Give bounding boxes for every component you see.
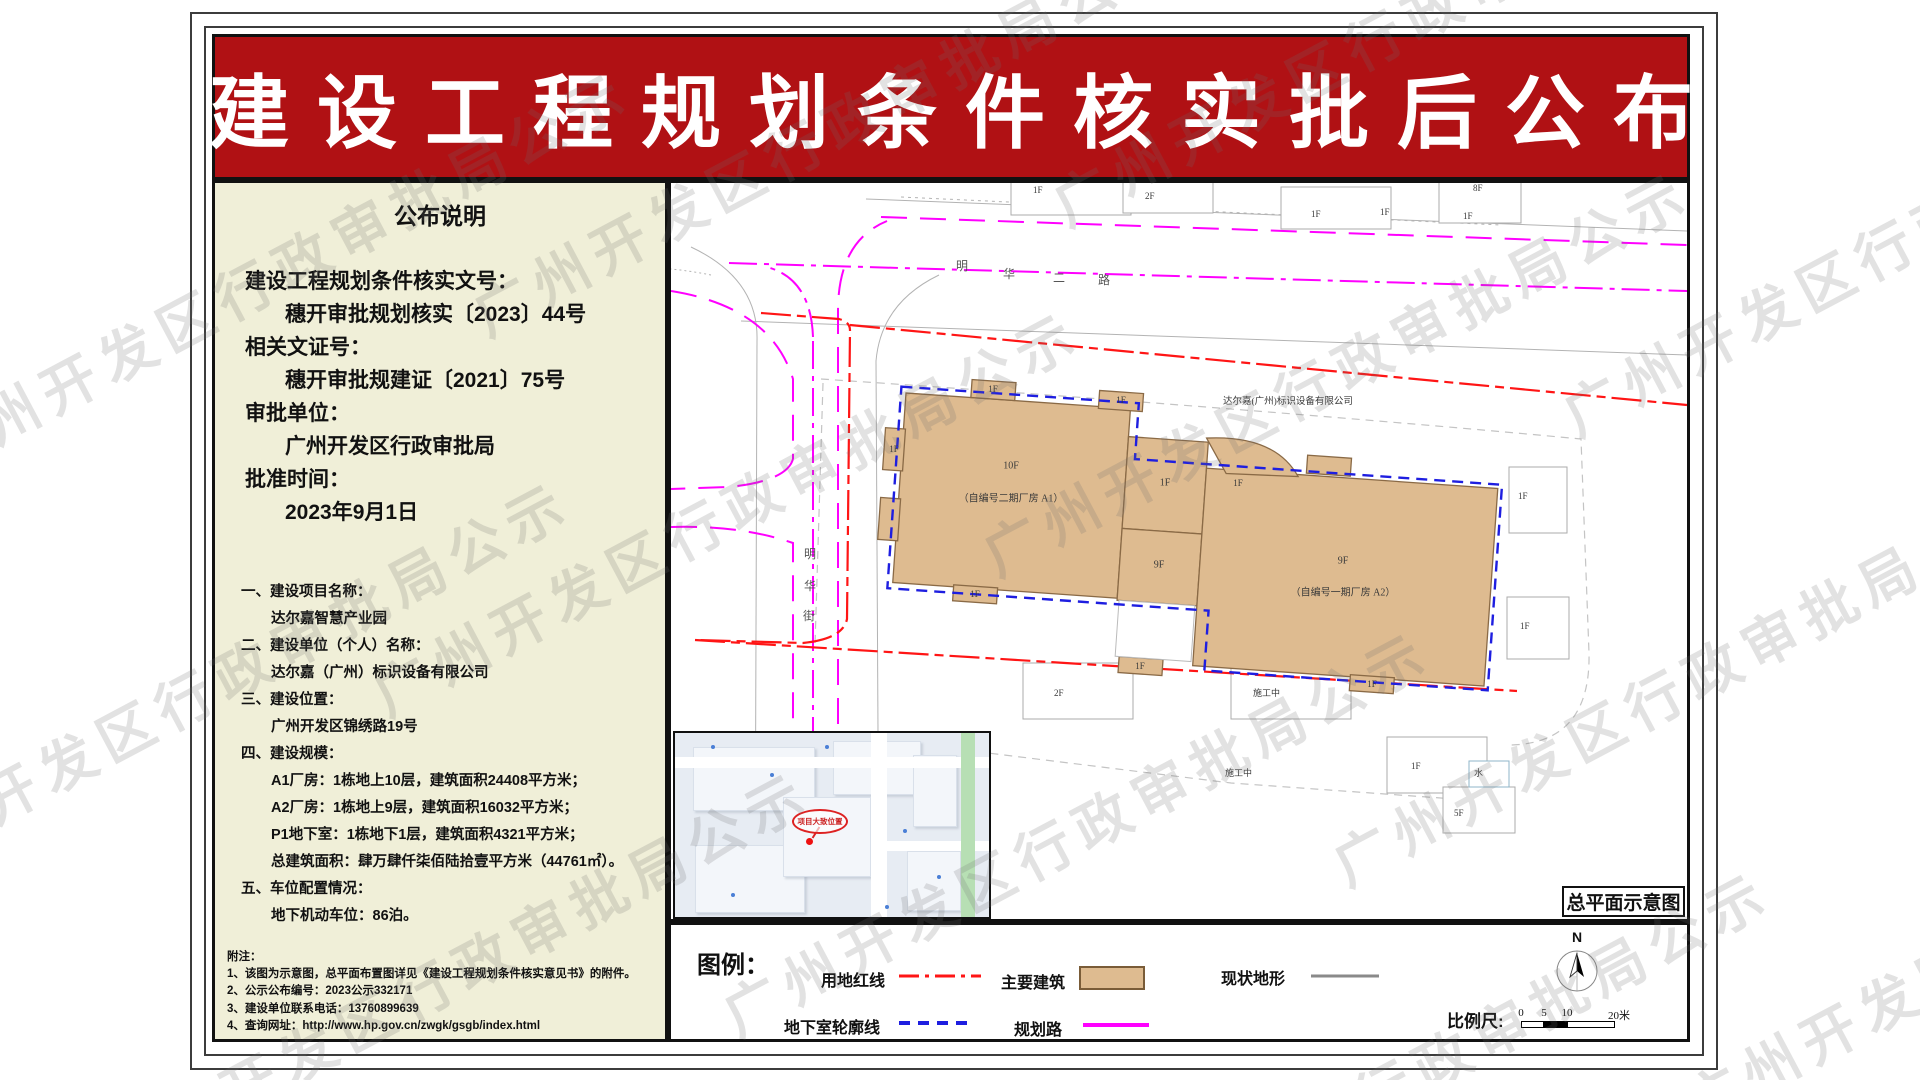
field-label: 相关文证号： bbox=[245, 331, 665, 364]
building-floors-a1: 10F bbox=[1003, 461, 1019, 472]
bldg-label: 1F bbox=[1520, 621, 1530, 631]
scale-bar-segment bbox=[1567, 1021, 1615, 1028]
map-caption-box: 总平面示意图 bbox=[1562, 886, 1685, 917]
footnote-line: 2、公示公布编号：2023公示332171 bbox=[227, 983, 636, 1000]
title-banner: 建设工程规划条件核实批后公布 bbox=[212, 34, 1690, 180]
legend-title: 图例： bbox=[697, 945, 769, 980]
legend-label-planning-road: 规划路 bbox=[1014, 1016, 1062, 1040]
bump-label: 1F bbox=[970, 589, 980, 599]
courtyard-notch bbox=[1115, 600, 1195, 661]
bump-label: 1F bbox=[1135, 661, 1145, 671]
north-arrow: N bbox=[1549, 927, 1605, 999]
section-line: 达尔嘉（广州）标识设备有限公司 bbox=[241, 660, 665, 687]
section-line: A2厂房：1栋地上9层，建筑面积16032平方米； bbox=[241, 795, 665, 822]
road-name-char: 二 bbox=[1053, 269, 1065, 286]
legend-blue-dashed-line bbox=[897, 1016, 969, 1030]
legend-label-main-building: 主要建筑 bbox=[1001, 969, 1065, 993]
water-label: 水 bbox=[1474, 766, 1483, 779]
bldg-label: 2F bbox=[1054, 688, 1064, 698]
footnote-line: 4、查询网址：http://www.hp.gov.cn/zwgk/gsgb/in… bbox=[227, 1018, 636, 1035]
field-value: 穗开审批规划核实〔2023〕44号 bbox=[245, 298, 665, 331]
legend-gray-line bbox=[1309, 969, 1381, 983]
bldg-label: 1F bbox=[1463, 211, 1473, 221]
company-label: 达尔嘉(广州)标识设备有限公司 bbox=[1223, 393, 1353, 407]
announcement-panel: 公布说明 建设工程规划条件核实文号： 穗开审批规划核实〔2023〕44号 相关文… bbox=[212, 180, 668, 1042]
locator-inset-map: 项目大致位置 bbox=[673, 731, 991, 919]
inset-road bbox=[675, 757, 991, 768]
bump-label: 1F bbox=[1233, 478, 1243, 488]
section-title: 三、建设位置： bbox=[241, 687, 665, 714]
scale-bar-segment bbox=[1521, 1021, 1544, 1028]
callout-text: 项目大致位置 bbox=[798, 816, 843, 827]
legend-red-dashdot-line bbox=[897, 969, 983, 983]
announcement-sheet: 建设工程规划条件核实批后公布 公布说明 建设工程规划条件核实文号： 穗开审批规划… bbox=[0, 0, 1920, 1080]
section-line: 地下机动车位：86泊。 bbox=[241, 903, 665, 930]
panel-title: 公布说明 bbox=[215, 197, 665, 231]
inset-block bbox=[907, 851, 961, 911]
poi-marker bbox=[711, 745, 715, 749]
section-line: 广州开发区锦绣路19号 bbox=[241, 714, 665, 741]
building-floors-a2: 9F bbox=[1338, 556, 1349, 567]
legend-building-swatch bbox=[1079, 966, 1145, 990]
field-label: 批准时间： bbox=[245, 463, 665, 496]
inset-greenway bbox=[961, 733, 975, 919]
bump-label: 1F bbox=[1116, 395, 1126, 405]
bldg-label: 1F bbox=[1380, 207, 1390, 217]
legend-magenta-line bbox=[1081, 1018, 1151, 1032]
scale-label: 比例尺: bbox=[1447, 1007, 1504, 1032]
north-label: N bbox=[1572, 929, 1582, 945]
field-value: 2023年9月1日 bbox=[245, 496, 665, 529]
road-name-char: 明 bbox=[804, 545, 816, 562]
page-title: 建设工程规划条件核实批后公布 bbox=[181, 49, 1721, 165]
legend-label-red-line: 用地红线 bbox=[821, 967, 885, 991]
section-line: 达尔嘉智慧产业园 bbox=[241, 606, 665, 633]
bldg-label: 1F bbox=[1411, 761, 1421, 771]
section-title: 五、车位配置情况： bbox=[241, 876, 665, 903]
section-line: P1地下室：1栋地下1层，建筑面积4321平方米； bbox=[241, 822, 665, 849]
poi-marker bbox=[937, 875, 941, 879]
map-caption: 总平面示意图 bbox=[1566, 888, 1680, 915]
site-plan-map: 1F 2F 1F 1F 8F 1F 1F 1F 2F 施工中 施工中 1F 水 … bbox=[668, 180, 1690, 922]
construction-label: 施工中 bbox=[1253, 686, 1280, 699]
bump-label: 1F bbox=[1367, 679, 1377, 689]
section-line: 总建筑面积：肆万肆仟柒佰陆拾壹平方米（44761㎡）。 bbox=[241, 849, 665, 876]
road-name-char: 街 bbox=[803, 607, 815, 624]
project-sections: 一、建设项目名称： 达尔嘉智慧产业园 二、建设单位（个人）名称： 达尔嘉（广州）… bbox=[241, 579, 665, 930]
footnote-line: 1、该图为示意图，总平面布置图详见《建设工程规划条件核实意见书》的附件。 bbox=[227, 966, 636, 983]
building-name-a1: （自编号二期厂房 A1） bbox=[959, 490, 1064, 505]
project-location-dot bbox=[806, 838, 813, 845]
approval-fields: 建设工程规划条件核实文号： 穗开审批规划核实〔2023〕44号 相关文证号： 穗… bbox=[245, 265, 665, 529]
poi-marker bbox=[770, 773, 774, 777]
legend-bar: 图例： 用地红线 主要建筑 现状地形 地下室轮廓线 规划路 N 比例尺: 0 bbox=[668, 922, 1690, 1042]
road-name-char: 路 bbox=[1098, 271, 1110, 288]
bump-label: 1F bbox=[889, 444, 899, 454]
poi-marker bbox=[885, 905, 889, 909]
field-label: 建设工程规划条件核实文号： bbox=[245, 265, 665, 298]
scale-tick: 10 bbox=[1562, 1007, 1573, 1019]
main-buildings bbox=[869, 374, 1506, 700]
footnote-line: 3、建设单位联系电话：13760899639 bbox=[227, 1001, 636, 1018]
road-name-char: 华 bbox=[804, 577, 816, 594]
poi-marker bbox=[731, 893, 735, 897]
bldg-label: 1F bbox=[1033, 185, 1043, 195]
bldg-label: 1F bbox=[1518, 491, 1528, 501]
building-floors-mid1: 1F bbox=[1160, 478, 1171, 489]
section-title: 四、建设规模： bbox=[241, 741, 665, 768]
field-value: 广州开发区行政审批局 bbox=[245, 430, 665, 463]
section-line: A1厂房：1栋地上10层，建筑面积24408平方米； bbox=[241, 768, 665, 795]
field-value: 穗开审批规建证〔2021〕75号 bbox=[245, 364, 665, 397]
section-title: 二、建设单位（个人）名称： bbox=[241, 633, 665, 660]
poi-marker bbox=[903, 829, 907, 833]
bldg-label: 8F bbox=[1473, 183, 1483, 193]
project-location-callout: 项目大致位置 bbox=[792, 809, 848, 834]
section-title: 一、建设项目名称： bbox=[241, 579, 665, 606]
bldg-label: 5F bbox=[1454, 808, 1464, 818]
scale-tick: 5 bbox=[1541, 1007, 1547, 1019]
building-floors-mid2: 9F bbox=[1154, 560, 1165, 571]
bldg-label: 1F bbox=[1311, 209, 1321, 219]
legend-label-terrain: 现状地形 bbox=[1221, 965, 1285, 989]
construction-label: 施工中 bbox=[1225, 766, 1252, 779]
scale-tick: 0 bbox=[1518, 1007, 1524, 1019]
bldg-label: 2F bbox=[1145, 191, 1155, 201]
road-name-char: 明 bbox=[956, 257, 968, 274]
footnote-title: 附注： bbox=[227, 949, 636, 966]
road-name-char: 华 bbox=[1003, 265, 1015, 282]
bump-label: 1F bbox=[988, 384, 998, 394]
footnotes: 附注： 1、该图为示意图，总平面布置图详见《建设工程规划条件核实意见书》的附件。… bbox=[227, 949, 636, 1035]
field-label: 审批单位： bbox=[245, 397, 665, 430]
building-name-a2: （自编号一期厂房 A2） bbox=[1291, 584, 1396, 599]
scale-bar-segment bbox=[1544, 1021, 1567, 1028]
poi-marker bbox=[825, 745, 829, 749]
legend-label-basement: 地下室轮廓线 bbox=[784, 1014, 880, 1038]
